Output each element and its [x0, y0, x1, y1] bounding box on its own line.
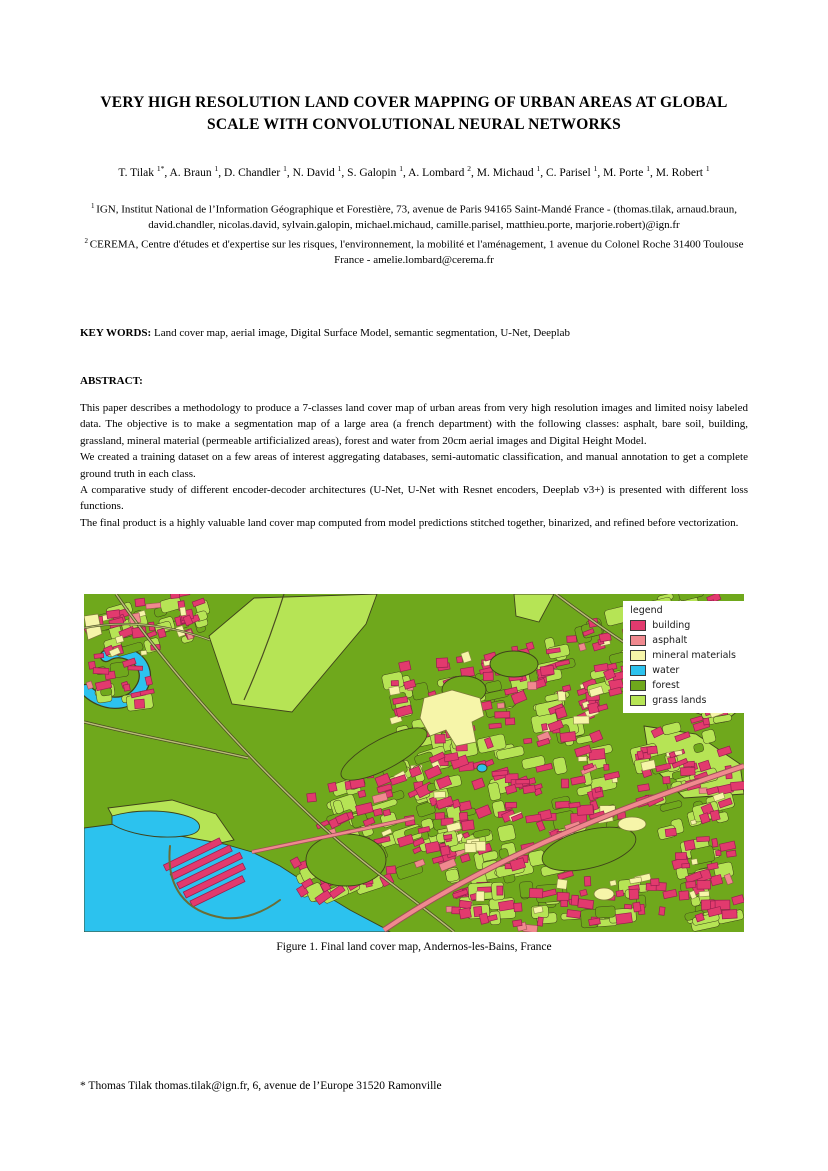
author-name: A. Lombard 2 [408, 167, 471, 179]
legend-label-grass: grass lands [652, 695, 706, 706]
legend-swatch-building [630, 620, 646, 631]
author-name: D. Chandler 1 [224, 167, 287, 179]
legend-title: legend [630, 605, 736, 616]
keywords-line: KEY WORDS: Land cover map, aerial image,… [80, 327, 748, 339]
legend-swatch-asphalt [630, 635, 646, 646]
legend-row-grass: grass lands [630, 695, 736, 706]
legend-row-mineral: mineral materials [630, 650, 736, 661]
abstract-paragraph: The final product is a highly valuable l… [80, 515, 748, 531]
paper-page: VERY HIGH RESOLUTION LAND COVER MAPPING … [0, 0, 828, 1171]
author-name: C. Parisel 1 [546, 167, 597, 179]
author-name: M. Porte 1 [603, 167, 650, 179]
author-name: A. Braun 1 [169, 167, 218, 179]
legend-swatch-mineral [630, 650, 646, 661]
author-name: M. Michaud 1 [477, 167, 540, 179]
legend-row-building: building [630, 620, 736, 631]
legend-row-asphalt: asphalt [630, 635, 736, 646]
map-legend: legend buildingasphaltmineral materialsw… [623, 601, 744, 713]
abstract-paragraph: We created a training dataset on a few a… [80, 449, 748, 482]
affiliations-block: 1 IGN, Institut National de l’Informatio… [78, 199, 750, 269]
affiliation: 2 CEREMA, Centre d'études et d'expertise… [78, 234, 750, 269]
legend-row-water: water [630, 665, 736, 676]
legend-swatch-grass [630, 695, 646, 706]
paper-title-line1: VERY HIGH RESOLUTION LAND COVER MAPPING … [58, 92, 770, 114]
author-name: S. Galopin 1 [347, 167, 403, 179]
corresponding-author-footnote: * Thomas Tilak thomas.tilak@ign.fr, 6, a… [80, 1080, 442, 1092]
author-name: N. David 1 [293, 167, 342, 179]
keywords-label: KEY WORDS: [80, 327, 151, 339]
abstract-heading: ABSTRACT: [80, 375, 143, 387]
authors-line: T. Tilak 1*, A. Braun 1, D. Chandler 1, … [38, 164, 790, 179]
author-name: M. Robert 1 [656, 167, 710, 179]
keywords-text: Land cover map, aerial image, Digital Su… [154, 327, 570, 339]
legend-label-building: building [652, 620, 690, 631]
legend-label-mineral: mineral materials [652, 650, 736, 661]
paper-title: VERY HIGH RESOLUTION LAND COVER MAPPING … [58, 92, 770, 136]
legend-label-asphalt: asphalt [652, 635, 687, 646]
abstract-body: This paper describes a methodology to pr… [80, 400, 748, 531]
legend-label-forest: forest [652, 680, 679, 691]
figure-land-cover-map: legend buildingasphaltmineral materialsw… [84, 594, 744, 932]
affiliation: 1 IGN, Institut National de l’Informatio… [78, 199, 750, 234]
author-name: T. Tilak 1* [118, 167, 164, 179]
legend-swatch-forest [630, 680, 646, 691]
figure-caption: Figure 1. Final land cover map, Andernos… [0, 941, 828, 953]
legend-row-forest: forest [630, 680, 736, 691]
paper-title-line2: SCALE WITH CONVOLUTIONAL NEURAL NETWORKS [58, 114, 770, 136]
legend-swatch-water [630, 665, 646, 676]
legend-label-water: water [652, 665, 679, 676]
abstract-paragraph: This paper describes a methodology to pr… [80, 400, 748, 449]
abstract-paragraph: A comparative study of different encoder… [80, 482, 748, 515]
